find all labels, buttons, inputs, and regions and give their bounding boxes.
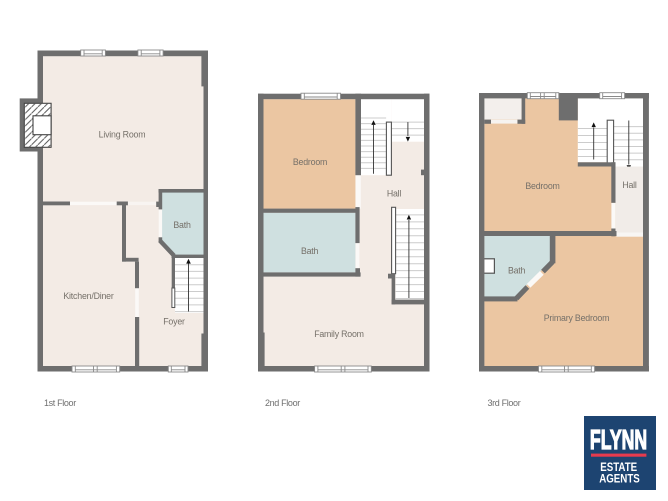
svg-text:Hall: Hall [387, 189, 402, 199]
svg-text:Living Room: Living Room [99, 130, 146, 140]
svg-text:Kitchen/Diner: Kitchen/Diner [63, 291, 113, 301]
svg-text:3rd Floor: 3rd Floor [488, 398, 521, 408]
svg-text:Bedroom: Bedroom [293, 157, 327, 167]
svg-text:Bath: Bath [301, 246, 319, 256]
svg-text:Bedroom: Bedroom [525, 181, 559, 191]
svg-text:Bath: Bath [173, 220, 191, 230]
svg-text:Family Room: Family Room [314, 329, 364, 339]
svg-text:Hall: Hall [622, 180, 637, 190]
svg-text:AGENTS: AGENTS [599, 473, 640, 486]
svg-text:FLYNN: FLYNN [590, 424, 647, 455]
svg-text:Primary Bedroom: Primary Bedroom [544, 313, 609, 323]
svg-text:2nd Floor: 2nd Floor [265, 398, 300, 408]
svg-text:Foyer: Foyer [163, 317, 185, 327]
svg-text:1st Floor: 1st Floor [44, 398, 76, 408]
svg-text:Bath: Bath [508, 266, 526, 276]
